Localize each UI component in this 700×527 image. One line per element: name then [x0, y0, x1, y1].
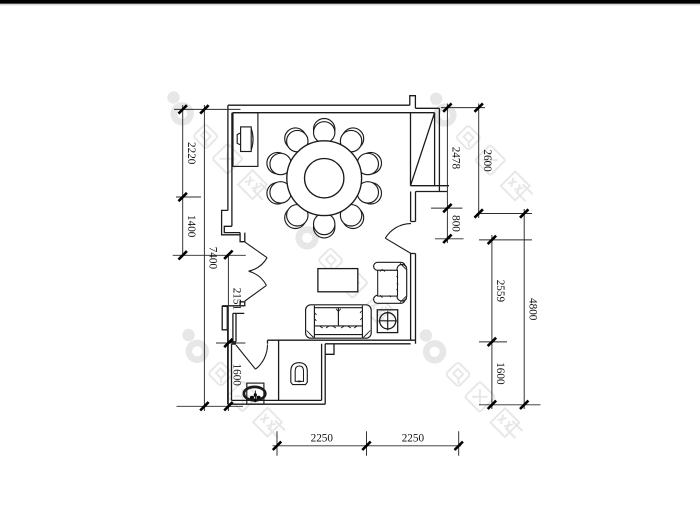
svg-text:2600: 2600 — [481, 149, 493, 172]
svg-text:7400: 7400 — [207, 247, 219, 270]
svg-text:4800: 4800 — [526, 298, 538, 321]
svg-text:1400: 1400 — [185, 215, 197, 238]
svg-text:800: 800 — [450, 215, 462, 232]
svg-text:2478: 2478 — [450, 147, 462, 170]
svg-text:2220: 2220 — [185, 142, 197, 165]
svg-text:1600: 1600 — [494, 362, 506, 385]
svg-text:2151: 2151 — [231, 288, 243, 310]
svg-text:2559: 2559 — [494, 280, 506, 303]
svg-text:2250: 2250 — [402, 433, 425, 445]
svg-text:2250: 2250 — [311, 433, 334, 445]
svg-text:1600: 1600 — [231, 364, 243, 387]
